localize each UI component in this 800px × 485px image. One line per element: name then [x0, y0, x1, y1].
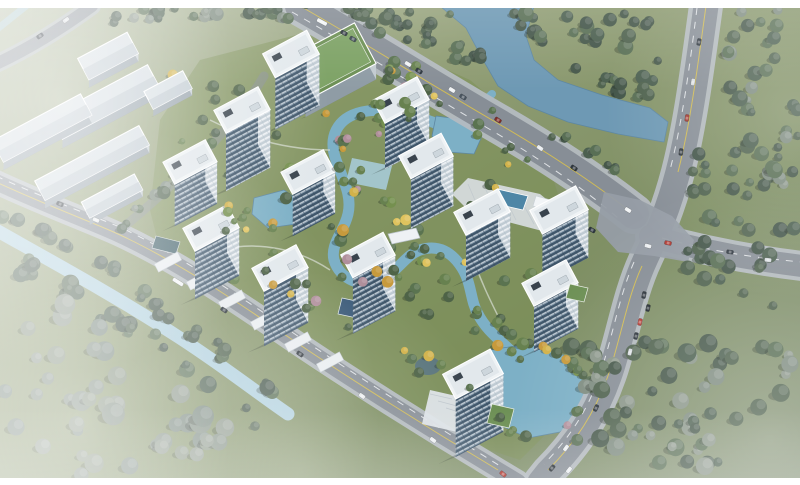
rendering-canvas — [0, 0, 800, 485]
aerial-site-rendering — [0, 0, 800, 485]
